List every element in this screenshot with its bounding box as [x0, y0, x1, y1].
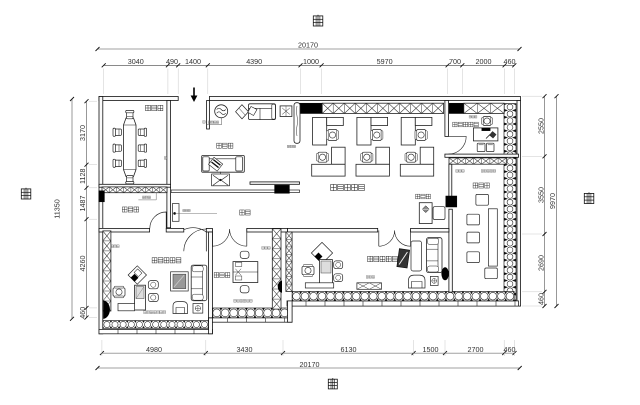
svg-text:460: 460	[537, 293, 546, 305]
svg-text:2000: 2000	[476, 57, 492, 66]
svg-text:460: 460	[504, 345, 516, 354]
svg-text:3040: 3040	[128, 57, 144, 66]
svg-text:9970: 9970	[548, 193, 557, 209]
svg-text:460: 460	[504, 57, 516, 66]
svg-text:1128: 1128	[78, 168, 87, 183]
svg-text:6130: 6130	[341, 345, 357, 354]
svg-text:20170: 20170	[300, 360, 320, 369]
svg-text:460: 460	[78, 307, 87, 319]
svg-text:2700: 2700	[468, 345, 484, 354]
svg-text:3170: 3170	[78, 125, 87, 141]
svg-text:1500: 1500	[423, 345, 439, 354]
svg-text:20170: 20170	[298, 41, 318, 50]
svg-text:1400: 1400	[185, 57, 201, 66]
svg-text:2690: 2690	[537, 255, 546, 271]
svg-text:3550: 3550	[537, 187, 546, 203]
svg-text:4390: 4390	[246, 57, 262, 66]
svg-text:5970: 5970	[377, 57, 393, 66]
svg-text:2550: 2550	[537, 118, 546, 134]
svg-text:1487: 1487	[78, 196, 87, 212]
svg-text:700: 700	[449, 57, 461, 66]
svg-text:1000: 1000	[303, 57, 319, 66]
svg-text:4980: 4980	[146, 345, 162, 354]
svg-text:490: 490	[166, 57, 178, 66]
svg-text:3430: 3430	[237, 345, 253, 354]
svg-text:11350: 11350	[53, 199, 62, 218]
svg-text:4260: 4260	[78, 256, 87, 272]
